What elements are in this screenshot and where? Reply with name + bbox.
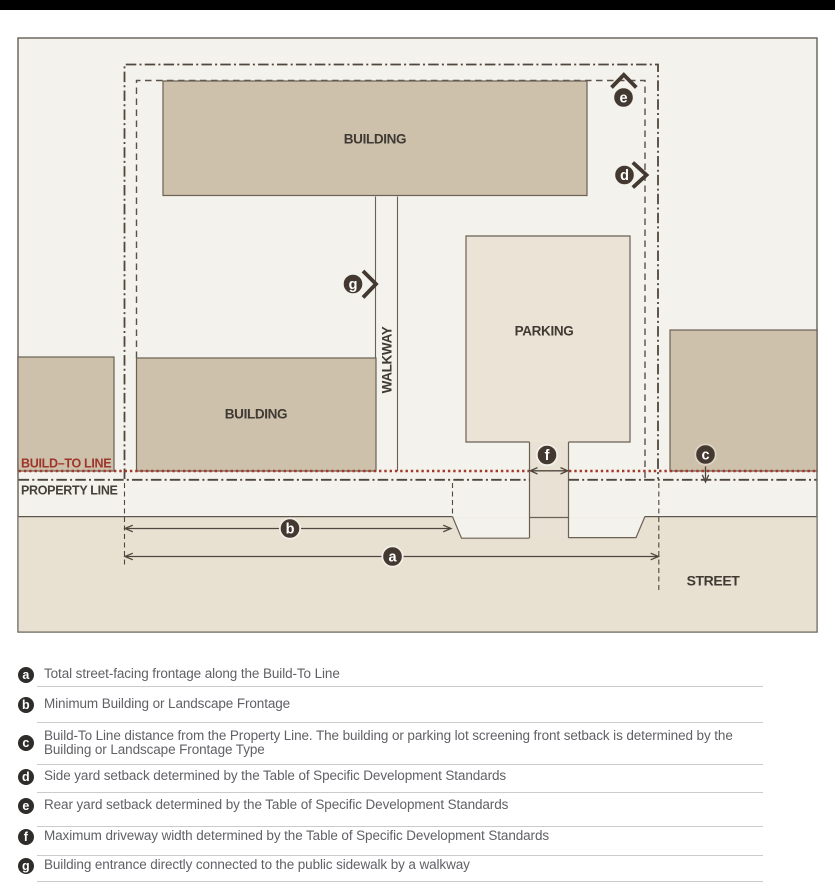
svg-text:c: c [701,448,709,464]
svg-text:BUILD–TO LINE: BUILD–TO LINE [21,457,111,471]
svg-text:a: a [388,550,397,566]
svg-text:d: d [620,168,629,184]
svg-text:PARKING: PARKING [515,324,574,339]
svg-text:BUILDING: BUILDING [225,407,287,422]
svg-text:WALKWAY: WALKWAY [380,326,395,393]
svg-text:g: g [349,277,358,293]
svg-text:f: f [545,448,550,464]
svg-text:BUILDING: BUILDING [344,132,406,147]
svg-text:e: e [619,91,627,107]
svg-text:PROPERTY LINE: PROPERTY LINE [21,484,118,498]
svg-text:STREET: STREET [687,573,741,589]
svg-text:b: b [286,522,295,538]
